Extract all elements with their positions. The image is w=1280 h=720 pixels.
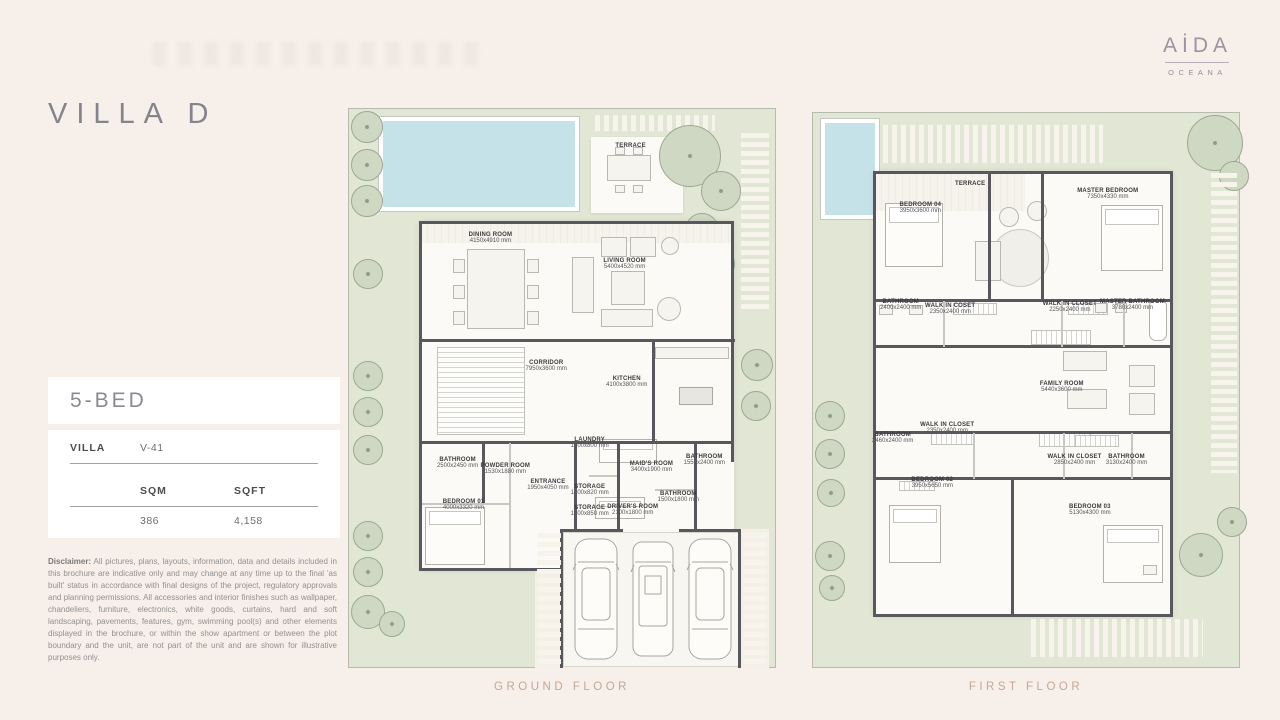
tree-icon (701, 171, 741, 211)
furniture (1027, 201, 1047, 221)
deck-stripes (883, 125, 1103, 163)
villa-number: V-41 (140, 442, 164, 454)
first-floor-plan: TERRACEBEDROOM 043950x3600 mmMASTER BEDR… (812, 112, 1240, 668)
furniture (657, 297, 681, 321)
room-label: TERRACE (955, 181, 985, 187)
ground-floor-caption: GROUND FLOOR (348, 681, 776, 693)
wall (419, 221, 422, 571)
tree-icon (741, 391, 771, 421)
tree-icon (353, 521, 383, 551)
room-label: LAUNDRY1400x800 mm (571, 437, 609, 449)
deck-stripes (741, 133, 769, 313)
disclaimer-text: Disclaimer: All pictures, plans, layouts… (48, 556, 337, 664)
furniture (1143, 565, 1157, 575)
wall (419, 339, 735, 342)
room-label: STORAGE1400x850 mm (571, 505, 609, 517)
room-label: BEDROOM 043950x3600 mm (900, 202, 942, 214)
bed (889, 505, 941, 563)
tree-icon (353, 397, 383, 427)
staircase (437, 347, 525, 435)
bed (425, 507, 485, 565)
cars-icon (563, 534, 741, 666)
villa-label: VILLA (70, 442, 105, 454)
furniture (467, 249, 525, 329)
bedrooms-card: 5-BED (48, 377, 340, 424)
room-label: WALK IN CLOSET2850x2400 mm (1047, 454, 1101, 466)
furniture (633, 185, 643, 193)
first-floor-caption: FIRST FLOOR (812, 681, 1240, 693)
deck-stripes (1211, 173, 1237, 473)
bedrooms-label: 5-BED (70, 389, 147, 413)
divider (70, 463, 318, 464)
swimming-pool (821, 119, 879, 219)
partition-line (589, 475, 617, 477)
wall (563, 529, 623, 532)
tree-icon (817, 479, 845, 507)
furniture (453, 285, 465, 299)
brand-divider (1165, 62, 1229, 63)
room-label: BEDROOM 035130x4300 mm (1069, 504, 1111, 516)
furniture (453, 259, 465, 273)
tiled-floor (421, 223, 732, 243)
divider (70, 506, 318, 507)
sqm-header: SQM (140, 485, 167, 497)
furniture (611, 271, 645, 305)
tree-icon (1217, 507, 1247, 537)
room-label: KITCHEN4100x3800 mm (606, 376, 647, 388)
tree-icon (351, 185, 383, 217)
brand-name: AİDA (1163, 34, 1232, 58)
furniture (615, 185, 625, 193)
furniture (999, 207, 1019, 227)
wall (1011, 479, 1014, 617)
tree-icon (741, 349, 773, 381)
room-label: ENTRANCE1950x4050 mm (527, 479, 568, 491)
room-label: MAID'S ROOM3400x1900 mm (630, 461, 673, 473)
tree-icon (815, 401, 845, 431)
room-label: CORRIDOR7950x3600 mm (526, 360, 567, 372)
brand-logo: AİDA OCEANA (1163, 34, 1232, 77)
room-label: BEDROOM 023950x5650 mm (911, 477, 953, 489)
tree-icon (379, 611, 405, 637)
room-label: MASTER BEDROOM7350x4330 mm (1077, 188, 1138, 200)
wall (679, 529, 741, 532)
bed (1101, 205, 1163, 271)
sqm-value: 386 (140, 515, 159, 527)
staircase (931, 433, 975, 445)
brochure-page: VILLA D AİDA OCEANA 5-BED VILLA V-41 SQM… (0, 0, 1280, 720)
furniture (607, 155, 651, 181)
disclaimer-body: All pictures, plans, layouts, informatio… (48, 557, 337, 662)
wall (419, 221, 734, 224)
tree-icon (353, 435, 383, 465)
room-label: BEDROOM 014000x3320 mm (443, 499, 485, 511)
room-label: WALK IN CLOSET2250x2400 mm (1043, 301, 1097, 313)
room-label: DRIVER'S ROOM2100x1800 mm (607, 504, 658, 516)
room-label: WALK IN COSET2350x2400 mm (925, 303, 975, 315)
deck-stripes (743, 533, 767, 667)
wall (873, 431, 1173, 434)
sqft-value: 4,158 (234, 515, 263, 527)
room-label: BATHROOM2500x2450 mm (437, 457, 478, 469)
wall (988, 171, 991, 302)
room-label: BATHROOM2460x2400 mm (872, 432, 913, 444)
room-label: TERRACE (615, 143, 645, 149)
furniture (527, 285, 539, 299)
partition-line (973, 433, 975, 479)
partition-line (509, 443, 511, 568)
room-label: BATHROOM1550x2400 mm (684, 454, 725, 466)
brand-subtitle: OCEANA (1163, 68, 1232, 77)
room-label: FAMILY ROOM5440x3600 mm (1040, 381, 1084, 393)
wall (652, 342, 655, 441)
room-label: BATHROOM1500x1800 mm (658, 491, 699, 503)
disclaimer-label: Disclaimer: (48, 557, 91, 566)
faint-watermark (152, 42, 482, 66)
furniture (453, 311, 465, 325)
staircase (1075, 435, 1119, 447)
deck-stripes (537, 533, 561, 667)
wall (873, 614, 1173, 617)
swimming-pool (379, 117, 579, 211)
tree-icon (351, 111, 383, 143)
room-label: LIVING ROOM5400x4520 mm (603, 258, 646, 270)
room-label: WALK IN CLOSET2350x2400 mm (920, 422, 974, 434)
wall (873, 345, 1173, 348)
furniture (655, 347, 729, 359)
wall (1170, 171, 1173, 617)
tree-icon (819, 575, 845, 601)
room-label: DINING ROOM4150x4910 mm (469, 232, 513, 244)
furniture (630, 237, 656, 257)
furniture (527, 259, 539, 273)
wall (873, 171, 876, 617)
room-label: MASTER BATHROOM3780x2400 mm (1100, 299, 1165, 311)
tree-icon (815, 439, 845, 469)
ground-floor-plan: TERRACEDINING ROOM4150x4910 mmLIVING ROO… (348, 108, 776, 668)
page-title: VILLA D (48, 98, 217, 131)
furniture (572, 257, 594, 313)
furniture (527, 311, 539, 325)
wall (1041, 171, 1044, 302)
furniture (1129, 393, 1155, 415)
room-label: BATHROOM3130x2400 mm (1106, 454, 1147, 466)
furniture (1129, 365, 1155, 387)
kitchen-island (679, 387, 713, 405)
tree-icon (815, 541, 845, 571)
wall (873, 171, 1173, 174)
furniture (601, 309, 653, 327)
tree-icon (353, 259, 383, 289)
tree-icon (351, 149, 383, 181)
furniture (601, 237, 627, 257)
furniture (1063, 351, 1107, 371)
tree-icon (353, 557, 383, 587)
room-label: STORAGE1400x820 mm (571, 484, 609, 496)
deck-stripes (1031, 619, 1203, 657)
furniture (661, 237, 679, 255)
room-label: BATHROOM2400x2400 mm (880, 299, 921, 311)
tree-icon (1179, 533, 1223, 577)
room-label: POWDER ROOM1530x1880 mm (481, 463, 531, 475)
sqft-header: SQFT (234, 485, 266, 497)
tree-icon (353, 361, 383, 391)
villa-info-card: VILLA V-41 SQM SQFT 386 4,158 (48, 430, 340, 538)
